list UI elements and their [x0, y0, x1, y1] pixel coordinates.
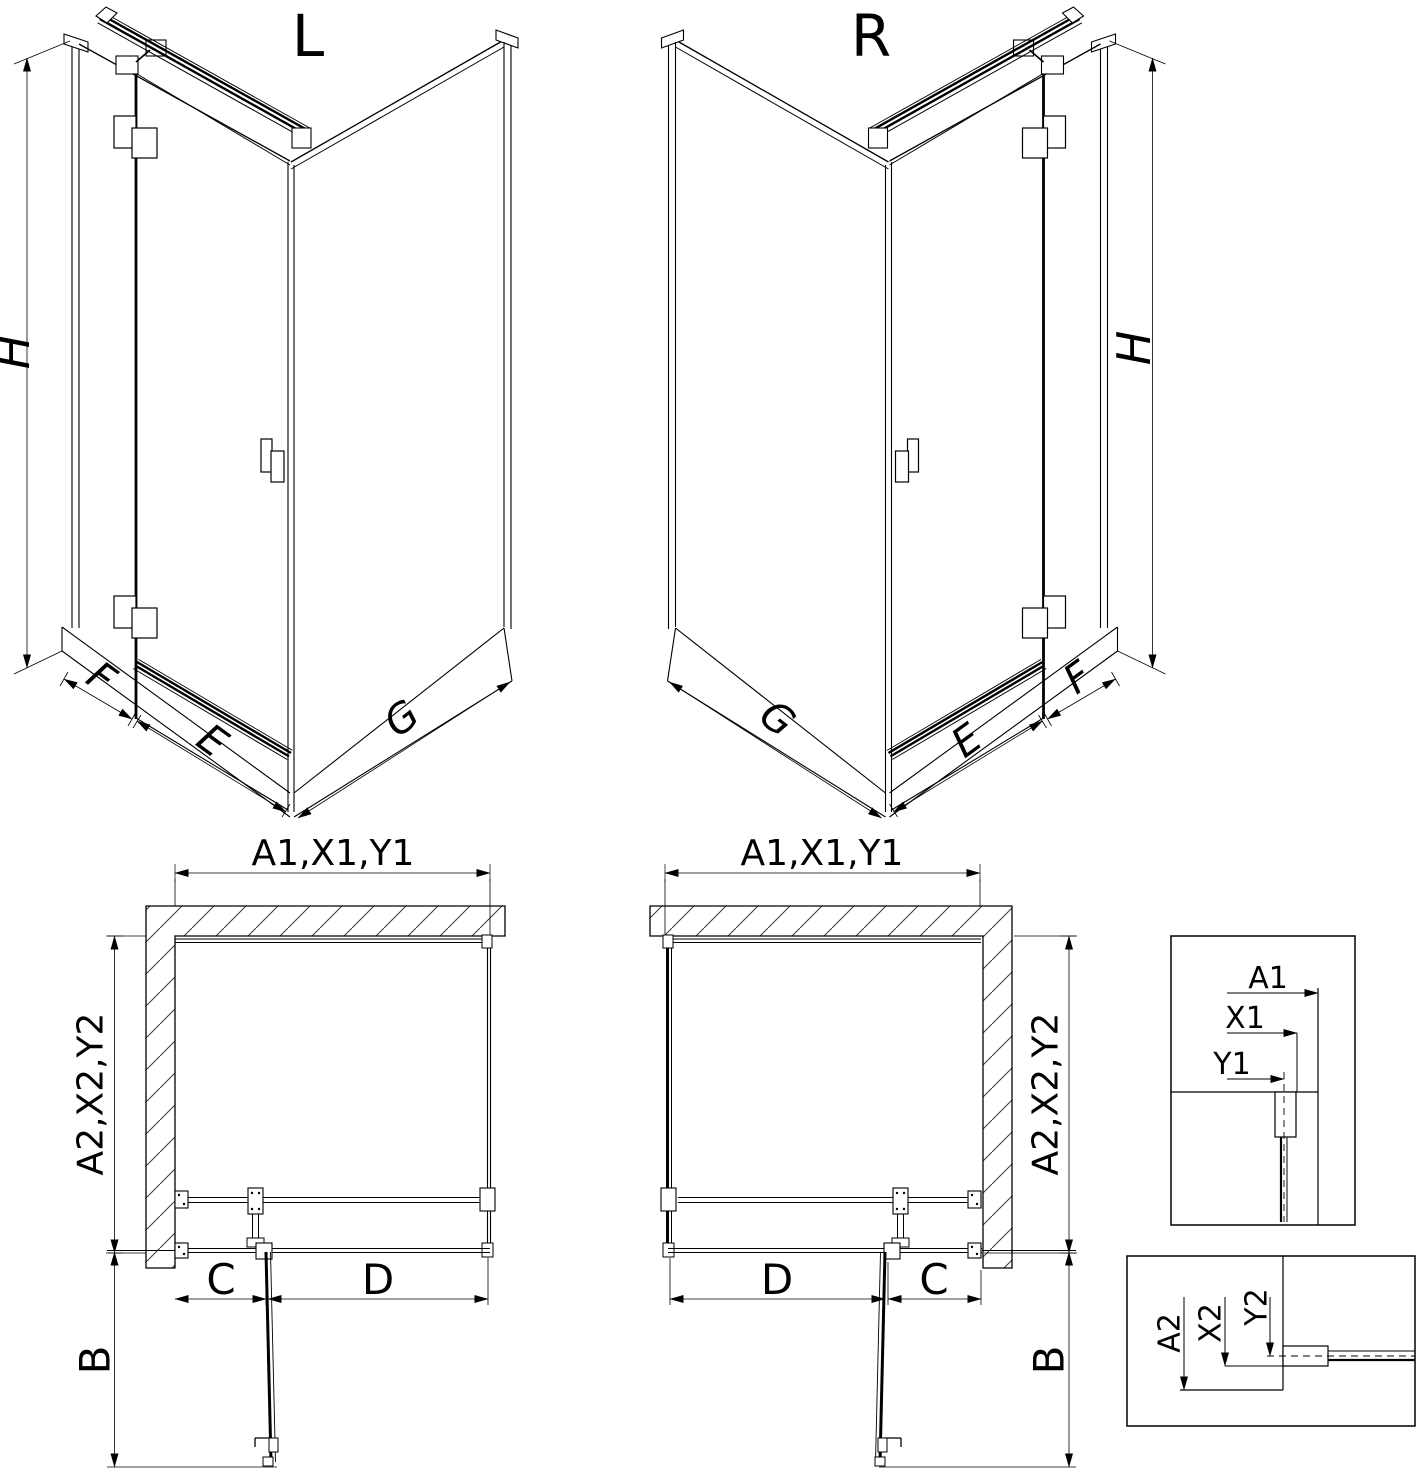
iso-left-view: L H F E G [0, 2, 518, 818]
plan-left-top-dim: A1,X1,Y1 [252, 833, 415, 874]
plan-left-view: A1,X1,Y1 A2,X2,Y2 C D B [71, 833, 506, 1467]
wall-section-left [146, 906, 505, 1268]
detail-bottom-label-a2: A2 [1153, 1313, 1188, 1353]
plan-right-view: A1,X1,Y1 A2,X2,Y2 D C B [650, 833, 1077, 1467]
dim-label-e-right: E [943, 715, 991, 767]
detail-bottom-label-x2: X2 [1194, 1303, 1229, 1343]
plan-left-dim-d: D [362, 1255, 394, 1304]
dim-label-h-left: H [0, 335, 40, 370]
plan-left-dim-c: C [206, 1255, 235, 1304]
detail-box-top: A1 X1 Y1 [1171, 936, 1355, 1225]
detail-top-label-y1: Y1 [1212, 1047, 1250, 1082]
dim-label-f-right: F [1055, 652, 1101, 703]
plan-left-dim-b: B [71, 1346, 120, 1375]
iso-right-view: R H G E F [662, 2, 1166, 818]
shower-enclosure-technical-drawing: L H F E G R H G E F [0, 0, 1426, 1476]
dim-label-e-left: E [188, 715, 236, 767]
plan-right-top-dim: A1,X1,Y1 [741, 833, 904, 874]
iso-left-title: L [292, 2, 324, 70]
detail-box-bottom: A2 X2 Y2 [1127, 1256, 1415, 1426]
plan-left-side-dim: A2,X2,Y2 [71, 1013, 112, 1176]
detail-bottom-label-y2: Y2 [1240, 1288, 1275, 1326]
detail-top-label-x1: X1 [1225, 1001, 1265, 1036]
plan-right-dim-d: D [761, 1255, 793, 1304]
detail-top-label-a1: A1 [1248, 961, 1288, 996]
technical-drawing-page: L H F E G R H G E F [0, 0, 1426, 1476]
dim-label-h-right: H [1107, 331, 1161, 366]
plan-right-dim-c: C [919, 1255, 948, 1304]
dim-label-f-left: F [78, 653, 124, 704]
wall-section-right [650, 906, 1012, 1268]
iso-right-title: R [851, 2, 891, 70]
plan-right-dim-b: B [1025, 1346, 1074, 1375]
plan-right-side-dim: A2,X2,Y2 [1026, 1013, 1067, 1176]
